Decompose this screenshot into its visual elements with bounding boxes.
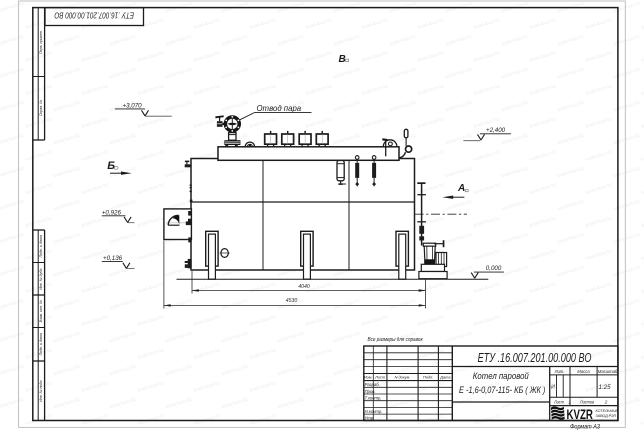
svg-text:ЕТУ .16.007.201.00.000 ВО: ЕТУ .16.007.201.00.000 ВО	[478, 352, 592, 366]
svg-text:Лист: Лист	[553, 399, 564, 404]
svg-text:Лит.: Лит.	[554, 369, 565, 374]
svg-text:Инв. № подл.: Инв. № подл.	[39, 380, 43, 402]
svg-text:Лист: Лист	[374, 375, 386, 380]
svg-text:Пров.: Пров.	[365, 389, 376, 394]
svg-text:Подп.: Подп.	[423, 375, 433, 380]
svg-text:KVZR: KVZR	[567, 407, 594, 422]
svg-text:+0,136: +0,136	[103, 255, 123, 262]
svg-text:0,000: 0,000	[486, 265, 502, 272]
svg-text:Н.контр.: Н.контр.	[365, 409, 383, 414]
svg-text:Перв. примен.: Перв. примен.	[39, 30, 43, 54]
svg-text:Б: Б	[107, 160, 115, 172]
svg-text:Инв. № дубл.: Инв. № дубл.	[39, 268, 43, 290]
svg-text:Подп. и дата: Подп. и дата	[39, 333, 43, 356]
svg-text:1: 1	[568, 400, 571, 405]
svg-text:4530: 4530	[286, 298, 298, 304]
svg-text:Листов: Листов	[579, 399, 595, 404]
svg-text:2: 2	[604, 400, 608, 405]
svg-text:Справ. №: Справ. №	[39, 100, 43, 116]
svg-text:КОТЕЛЬНЫЙ: КОТЕЛЬНЫЙ	[596, 409, 619, 413]
svg-text:И: И	[551, 385, 555, 391]
svg-text:ЕТУ .16.007.201.00.000 ВО: ЕТУ .16.007.201.00.000 ВО	[54, 10, 134, 20]
svg-text:N докум.: N докум.	[395, 375, 411, 380]
svg-text:Масса: Масса	[577, 369, 590, 374]
svg-text:Е -1,6-0,07-115- КБ ( ЖК ): Е -1,6-0,07-115- КБ ( ЖК )	[459, 384, 546, 395]
svg-text:Подп. и дата: Подп. и дата	[39, 235, 43, 258]
svg-text:1:25: 1:25	[598, 384, 611, 391]
svg-text:Отвод пара: Отвод пара	[257, 104, 302, 113]
svg-text:Взам. инв. №: Взам. инв. №	[39, 300, 43, 322]
svg-text:Все размеры для справок: Все размеры для справок	[367, 337, 423, 343]
svg-text:Дата: Дата	[439, 375, 451, 380]
svg-text:Котел паровой: Котел паровой	[473, 371, 529, 382]
svg-text:+2,400: +2,400	[486, 127, 506, 134]
svg-text:Разраб.: Разраб.	[365, 382, 380, 387]
svg-text:А: А	[457, 183, 465, 194]
svg-text:Формат А3: Формат А3	[570, 424, 601, 430]
svg-text:Масштаб: Масштаб	[598, 369, 618, 374]
svg-text:Изм.: Изм.	[364, 375, 372, 380]
svg-text:Утв.: Утв.	[365, 415, 375, 420]
svg-text:В: В	[339, 54, 346, 65]
svg-text:4040: 4040	[298, 284, 310, 290]
svg-text:ЗАВОД РЭП: ЗАВОД РЭП	[596, 414, 617, 418]
svg-text:Т.контр.: Т.контр.	[365, 396, 382, 401]
